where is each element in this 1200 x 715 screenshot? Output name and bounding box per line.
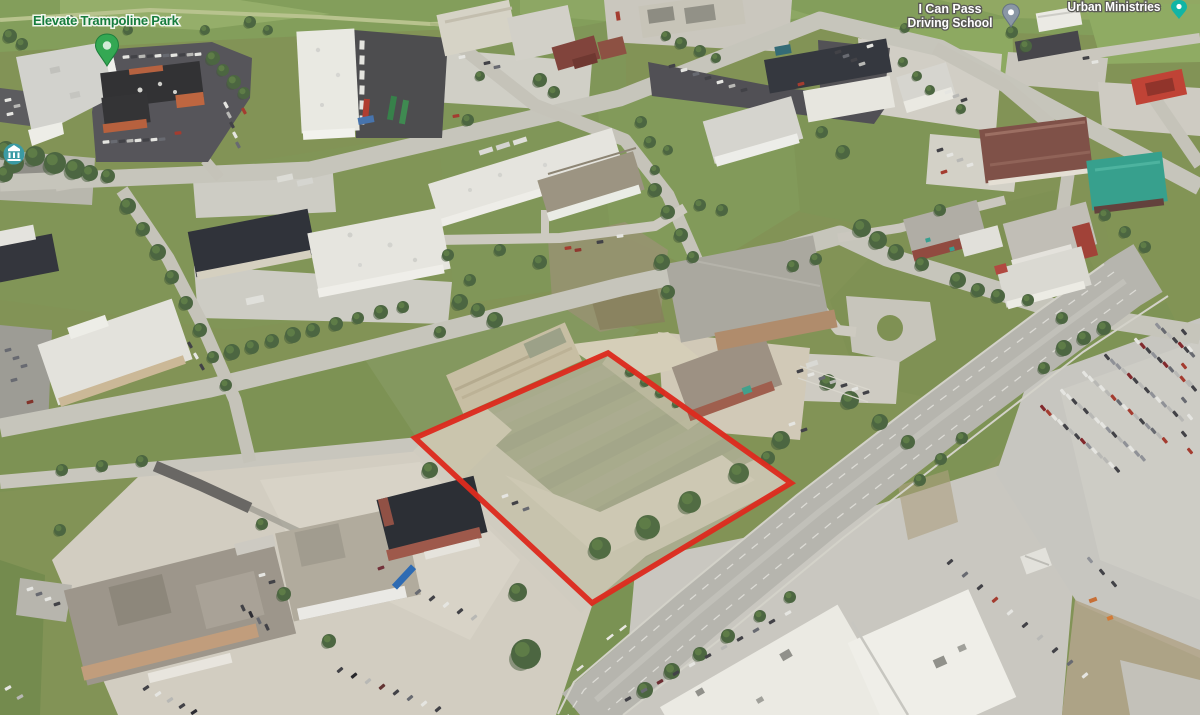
svg-text:I Can Pass: I Can Pass [919,2,982,16]
svg-text:Driving School: Driving School [908,16,993,30]
svg-text:Urban Ministries: Urban Ministries [1068,0,1161,14]
svg-text:Elevate Trampoline Park: Elevate Trampoline Park [33,13,180,28]
